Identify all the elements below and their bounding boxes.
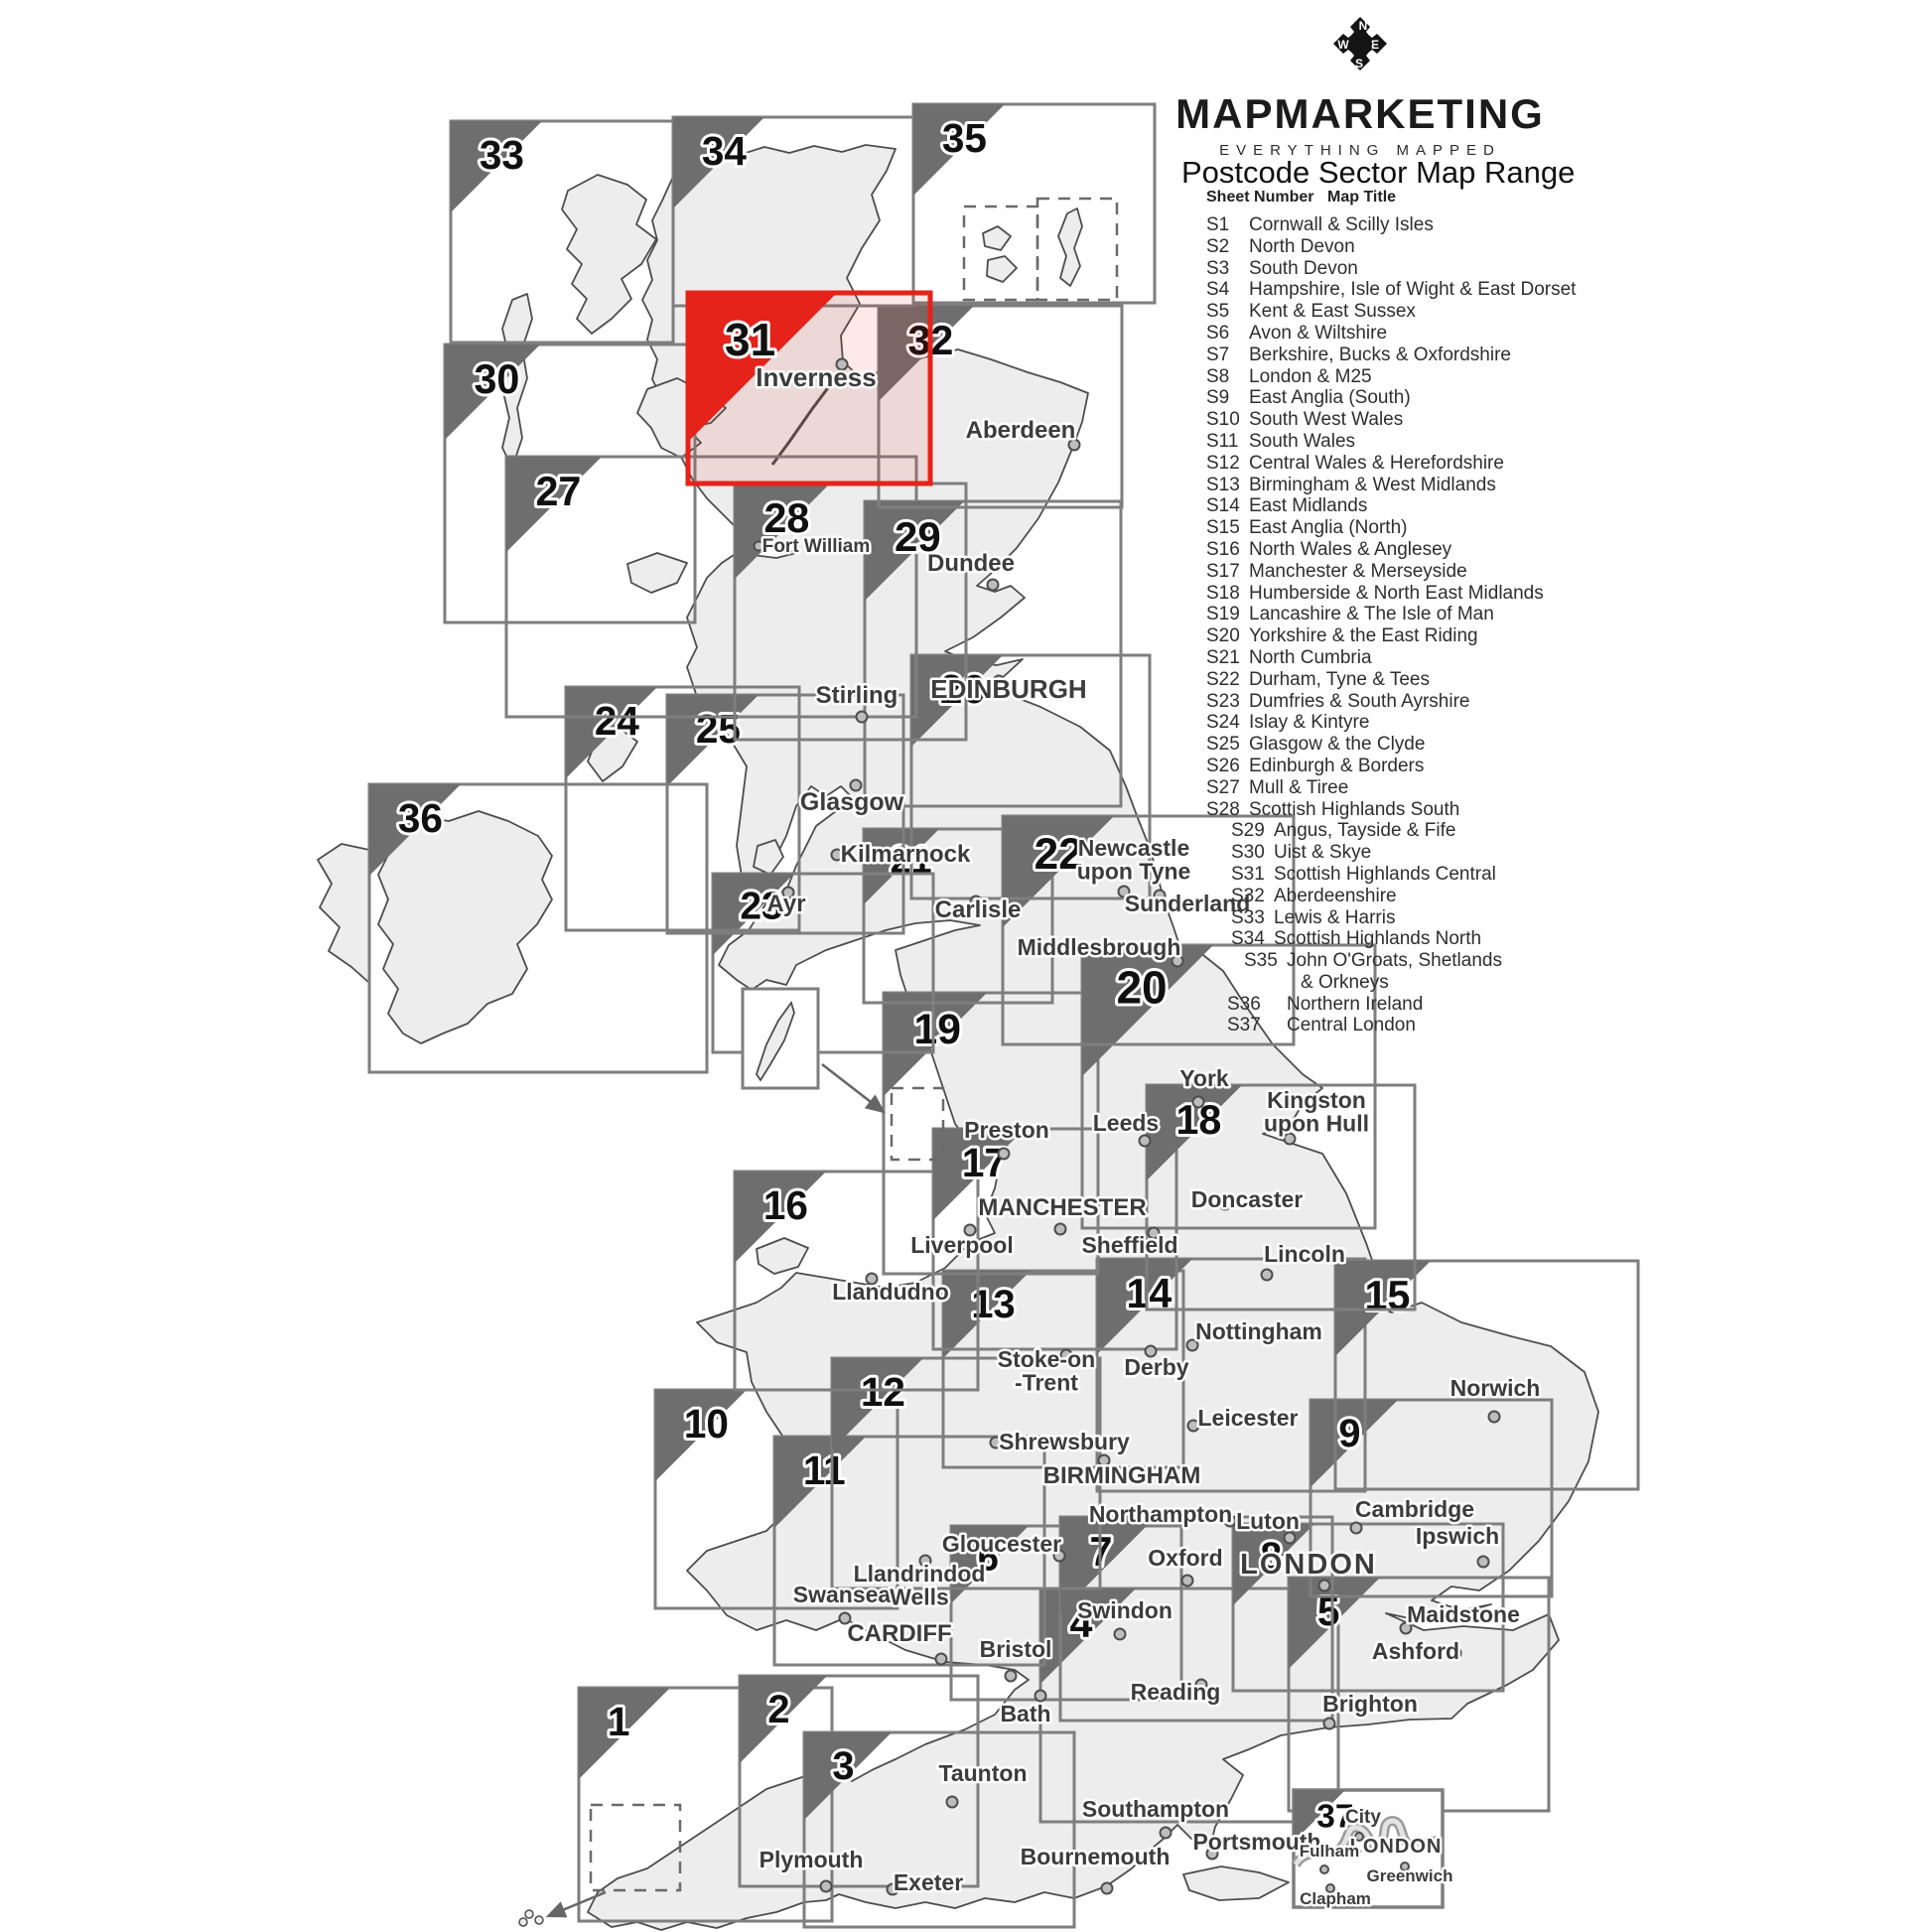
city-dot xyxy=(1320,1865,1328,1873)
legend-row-s19: S19Lancashire & The Isle of Man xyxy=(1187,604,1604,625)
scilly-isles xyxy=(535,1916,543,1924)
legend-row-s1: S1Cornwall & Scilly Isles xyxy=(1187,214,1604,236)
legend-row-s27: S27Mull & Tiree xyxy=(1187,777,1604,799)
city-label: Stirling xyxy=(816,682,898,709)
city-leicester: Leicester xyxy=(1188,1405,1299,1432)
brand-name: MAPMARKETING xyxy=(1142,90,1579,138)
city-label: Taunton xyxy=(939,1760,1028,1786)
city-label: CARDIFF xyxy=(847,1620,951,1647)
sheet-number-27: 27 xyxy=(535,469,581,514)
legend-sheet-number: S12 xyxy=(1206,453,1240,475)
city-llandudno: Llandudno xyxy=(832,1274,949,1306)
legend-row-s9: S9East Anglia (South) xyxy=(1187,387,1604,409)
landmass xyxy=(627,553,687,593)
landmass xyxy=(318,844,369,983)
legend-row-s21: S21North Cumbria xyxy=(1187,647,1604,669)
legend-col-sheet-number: Sheet Number xyxy=(1206,189,1313,207)
city-dot xyxy=(1115,1629,1126,1640)
legend-list: S1Cornwall & Scilly IslesS2North DevonS3… xyxy=(1187,214,1604,1036)
sheet-number-28: 28 xyxy=(763,495,809,541)
city-dot xyxy=(1351,1523,1362,1534)
legend-map-title: South Devon xyxy=(1249,258,1358,280)
city-label: LONDON xyxy=(1240,1549,1377,1581)
legend-map-title: Humberside & North East Midlands xyxy=(1249,583,1544,605)
legend-sheet-number: S32 xyxy=(1231,886,1265,907)
legend-row-s35: S35John O'Groats, Shetlands xyxy=(1187,950,1604,972)
legend-map-title: Central Wales & Herefordshire xyxy=(1249,453,1504,475)
legend-map-title: Angus, Tayside & Fife xyxy=(1274,820,1455,842)
city-label: Greenwich xyxy=(1367,1866,1453,1885)
legend-map-title: Durham, Tyne & Tees xyxy=(1249,669,1430,691)
city-reading: Reading xyxy=(1131,1679,1221,1705)
legend-sheet-number: S1 xyxy=(1206,214,1229,236)
legend-sheet-number: S36 xyxy=(1227,994,1261,1016)
city-london: LONDON xyxy=(1350,1836,1443,1858)
landmass xyxy=(1058,208,1082,286)
legend-map-title: Northern Ireland xyxy=(1287,994,1423,1016)
city-dot xyxy=(947,1797,958,1808)
sheet-number-34: 34 xyxy=(702,128,748,174)
city-label: Clapham xyxy=(1300,1889,1371,1908)
legend-sheet-number: S2 xyxy=(1206,236,1229,258)
legend-sheet-number: S20 xyxy=(1206,625,1240,647)
legend-row-s31: S31Scottish Highlands Central xyxy=(1187,864,1604,886)
sheet-number-17: 17 xyxy=(962,1140,1007,1185)
legend-map-title: Hampshire, Isle of Wight & East Dorset xyxy=(1249,279,1576,301)
legend-map-title: East Anglia (North) xyxy=(1249,517,1407,539)
city-label: EDINBURGH xyxy=(930,674,1086,704)
city-northampton: Northampton xyxy=(1089,1501,1236,1527)
city-edinburgh: EDINBURGH xyxy=(930,674,1086,704)
city-dot xyxy=(1182,1576,1193,1587)
legend-sheet-number: S33 xyxy=(1231,907,1265,929)
city-label: Carlisle xyxy=(935,897,1022,923)
legend-map-title: Manchester & Merseyside xyxy=(1249,561,1467,583)
city-label: York xyxy=(1179,1065,1229,1091)
legend-sheet-number: S19 xyxy=(1206,604,1240,625)
city-kilmarnock: Kilmarnock xyxy=(832,841,972,868)
city-label: Glasgow xyxy=(800,788,904,816)
legend-map-title: Dumfries & South Ayrshire xyxy=(1249,691,1469,713)
legend-sheet-number: S29 xyxy=(1231,820,1265,842)
legend-sheet-number: S3 xyxy=(1206,258,1229,280)
city-kingston-upon-hull: Kingstonupon Hull xyxy=(1264,1087,1369,1145)
city-carlisle: Carlisle xyxy=(935,897,1022,924)
scilly-isles xyxy=(525,1910,533,1918)
sheet-number-33: 33 xyxy=(480,132,524,178)
legend-row-s30: S30Uist & Skye xyxy=(1187,842,1604,864)
legend-row-s36: S36Northern Ireland xyxy=(1187,994,1604,1016)
city-dot xyxy=(1319,1581,1330,1591)
sheet-number-35: 35 xyxy=(942,115,987,161)
city-dot xyxy=(1285,1533,1296,1544)
legend-row-s18: S18Humberside & North East Midlands xyxy=(1187,583,1604,605)
legend-map-title: Mull & Tiree xyxy=(1249,777,1348,799)
landmass xyxy=(562,175,656,334)
legend-row-s34: S34Scottish Highlands North xyxy=(1187,928,1604,950)
compass-letter-n: N xyxy=(1359,19,1368,33)
sheet-number-12: 12 xyxy=(861,1369,905,1415)
legend-sheet-number: S14 xyxy=(1206,495,1240,517)
legend-row-s17: S17Manchester & Merseyside xyxy=(1187,561,1604,583)
city-label: Leeds xyxy=(1093,1110,1159,1136)
city-label: Bath xyxy=(1000,1701,1050,1726)
legend-row-s11: S11South Wales xyxy=(1187,431,1604,453)
city-label: Nottingham xyxy=(1195,1318,1322,1344)
city-label: Lincoln xyxy=(1264,1241,1345,1267)
sheet-number-16: 16 xyxy=(763,1182,808,1228)
sheet-number-11: 11 xyxy=(803,1448,846,1493)
legend-sheet-number: S35 xyxy=(1244,950,1278,972)
legend: Sheet Number Map Title S1Cornwall & Scil… xyxy=(1187,189,1604,1036)
city-gloucester: Gloucester xyxy=(942,1531,1065,1562)
sheet-number-9: 9 xyxy=(1338,1412,1360,1455)
city-dot xyxy=(1262,1270,1273,1281)
city-label: Northampton xyxy=(1089,1501,1232,1527)
page-title: Postcode Sector Map Range xyxy=(1181,155,1575,191)
inset-pointer-arrow xyxy=(822,1064,884,1112)
sheet-number-22: 22 xyxy=(1035,830,1083,879)
city-dot xyxy=(1193,1097,1204,1108)
city-label: Leicester xyxy=(1197,1405,1298,1431)
legend-sheet-number: S13 xyxy=(1206,475,1240,496)
city-label: Kingstonupon Hull xyxy=(1264,1087,1369,1136)
city-label: Middlesbrough xyxy=(1018,934,1181,960)
legend-row-s20: S20Yorkshire & the East Riding xyxy=(1187,625,1604,647)
city-dot xyxy=(1006,1671,1017,1682)
brand-block: NESW MAPMARKETING EVERYTHING MAPPED xyxy=(1142,8,1579,159)
legend-map-title: Birmingham & West Midlands xyxy=(1249,475,1496,496)
legend-sheet-number: S16 xyxy=(1206,539,1240,561)
legend-row-s24: S24Islay & Kintyre xyxy=(1187,712,1604,734)
legend-map-title: Central London xyxy=(1287,1015,1416,1036)
legend-sheet-number: S6 xyxy=(1206,323,1229,345)
city-exeter: Exeter xyxy=(888,1869,964,1895)
compass-letter-e: E xyxy=(1371,38,1379,52)
legend-sheet-number: S21 xyxy=(1206,647,1240,669)
legend-sheet-number: S11 xyxy=(1206,431,1238,453)
legend-row-s7: S7Berkshire, Bucks & Oxfordshire xyxy=(1187,345,1604,366)
city-label: Southampton xyxy=(1082,1796,1229,1822)
legend-row-s6: S6Avon & Wiltshire xyxy=(1187,323,1604,345)
city-dot xyxy=(1324,1719,1335,1729)
legend-row-s32: S32Aberdeenshire xyxy=(1187,886,1604,907)
city-dot xyxy=(1055,1224,1066,1235)
compass-letter-s: S xyxy=(1355,57,1363,70)
legend-map-title: East Anglia (South) xyxy=(1249,387,1411,409)
landmass xyxy=(983,226,1011,250)
city-dot xyxy=(936,1654,947,1665)
legend-map-title: London & M25 xyxy=(1249,366,1372,388)
city-dot xyxy=(988,580,999,591)
legend-sheet-number: S17 xyxy=(1206,561,1240,583)
sheet-number-10: 10 xyxy=(684,1401,729,1447)
sheet-number-30: 30 xyxy=(474,356,519,402)
legend-map-title: Avon & Wiltshire xyxy=(1249,323,1387,345)
city-label: Ayr xyxy=(766,891,805,917)
legend-row-s33: S33Lewis & Harris xyxy=(1187,907,1604,929)
city-label: Ashford xyxy=(1372,1638,1459,1664)
legend-map-title: Lewis & Harris xyxy=(1274,907,1395,929)
legend-map-title: Yorkshire & the East Riding xyxy=(1249,625,1478,647)
legend-row-s4: S4Hampshire, Isle of Wight & East Dorset xyxy=(1187,279,1604,301)
legend-sheet-number: S28 xyxy=(1206,799,1240,821)
city-label: Gloucester xyxy=(942,1531,1061,1557)
city-label: Liverpool xyxy=(910,1232,1014,1258)
city-label: Fulham xyxy=(1300,1842,1359,1861)
city-label: Ipswich xyxy=(1416,1523,1499,1549)
landmass xyxy=(757,1238,808,1274)
legend-map-title: Edinburgh & Borders xyxy=(1249,756,1424,777)
city-label: Llandudno xyxy=(832,1279,949,1305)
city-label: MANCHESTER xyxy=(978,1194,1146,1221)
legend-row-s16: S16North Wales & Anglesey xyxy=(1187,539,1604,561)
city-label: Norwich xyxy=(1450,1375,1541,1401)
legend-row-s26: S26Edinburgh & Borders xyxy=(1187,756,1604,777)
legend-map-title: Kent & East Sussex xyxy=(1249,301,1416,323)
compass-center xyxy=(1347,31,1372,56)
city-label: Aberdeen xyxy=(966,417,1076,444)
legend-sheet-number: S7 xyxy=(1206,345,1229,366)
legend-row-s37: S37Central London xyxy=(1187,1015,1604,1036)
landmass xyxy=(1183,1866,1289,1900)
city-cardiff: CARDIFF xyxy=(847,1620,951,1665)
legend-sheet-number: S30 xyxy=(1231,842,1265,864)
city-shrewsbury: Shrewsbury xyxy=(991,1429,1131,1454)
legend-map-title: Scottish Highlands Central xyxy=(1274,864,1496,886)
city-label: Derby xyxy=(1124,1354,1188,1380)
landmass xyxy=(378,811,552,1043)
city-doncaster: Doncaster xyxy=(1191,1186,1304,1212)
sheet-number-1: 1 xyxy=(608,1699,630,1744)
city-ayr: Ayr xyxy=(766,888,805,918)
legend-map-title: Islay & Kintyre xyxy=(1249,712,1369,734)
city-label: Maidstone xyxy=(1407,1601,1520,1627)
city-label: Kilmarnock xyxy=(841,841,971,868)
landmass xyxy=(987,256,1017,282)
legend-row-s29: S29Angus, Tayside & Fife xyxy=(1187,820,1604,842)
legend-row-s22: S22Durham, Tyne & Tees xyxy=(1187,669,1604,691)
legend-row-s12: S12Central Wales & Herefordshire xyxy=(1187,453,1604,475)
city-label: Fort William xyxy=(762,536,871,557)
city-dot xyxy=(1489,1412,1500,1423)
legend-map-title: Lancashire & The Isle of Man xyxy=(1249,604,1494,625)
legend-row-s2: S2North Devon xyxy=(1187,236,1604,258)
city-label: BIRMINGHAM xyxy=(1043,1462,1201,1489)
sheet-35: 35 xyxy=(913,104,1155,303)
city-greenwich: Greenwich xyxy=(1367,1863,1453,1885)
scilly-isles xyxy=(519,1918,527,1926)
legend-map-title: Scottish Highlands South xyxy=(1249,799,1459,821)
legend-sheet-number: S23 xyxy=(1206,691,1240,713)
legend-map-title: North Wales & Anglesey xyxy=(1249,539,1451,561)
orkney-extent-box xyxy=(964,207,1037,300)
city-label: Bournemouth xyxy=(1021,1844,1171,1869)
legend-row-s35-wrap: & Orkneys xyxy=(1187,972,1604,994)
legend-sheet-number: S10 xyxy=(1206,409,1240,431)
legend-map-title-wrap: & Orkneys xyxy=(1301,972,1389,994)
city-fort-william: Fort William xyxy=(755,536,871,557)
sheet-number-31: 31 xyxy=(725,314,775,365)
legend-row-s14: S14East Midlands xyxy=(1187,495,1604,517)
legend-map-title: Scottish Highlands North xyxy=(1274,928,1481,950)
sheet-number-36: 36 xyxy=(398,795,443,841)
legend-row-s8: S8London & M25 xyxy=(1187,366,1604,388)
legend-map-title: North Cumbria xyxy=(1249,647,1372,669)
city-dot xyxy=(821,1881,832,1892)
legend-row-s3: S3South Devon xyxy=(1187,258,1604,280)
city-label: Oxford xyxy=(1148,1545,1222,1571)
city-label: Doncaster xyxy=(1191,1186,1304,1212)
legend-row-s5: S5Kent & East Sussex xyxy=(1187,301,1604,323)
city-label: Reading xyxy=(1131,1679,1221,1705)
city-label: Cambridge xyxy=(1355,1496,1474,1522)
city-label: Exeter xyxy=(894,1869,963,1895)
sheet-number-19: 19 xyxy=(914,1006,962,1053)
city-sheffield: Sheffield xyxy=(1081,1228,1177,1259)
sheet-number-15: 15 xyxy=(1364,1273,1410,1318)
uk-postcode-sheet-map: 1234567891011121314151617181920212223242… xyxy=(0,0,1932,1932)
legend-sheet-number: S18 xyxy=(1206,583,1240,605)
legend-row-s28: S28Scottish Highlands South xyxy=(1187,799,1604,821)
city-label: City xyxy=(1345,1807,1381,1828)
legend-map-title: South West Wales xyxy=(1249,409,1403,431)
city-label: Inverness xyxy=(756,362,876,392)
legend-map-title: Cornwall & Scilly Isles xyxy=(1249,214,1434,236)
legend-row-s13: S13Birmingham & West Midlands xyxy=(1187,475,1604,496)
city-inverness: Inverness xyxy=(756,359,876,393)
city-label: Shrewsbury xyxy=(999,1429,1130,1454)
city-label: Plymouth xyxy=(759,1847,864,1872)
city-label: Luton xyxy=(1236,1508,1300,1534)
city-dot xyxy=(999,1149,1010,1160)
legend-map-title: South Wales xyxy=(1249,431,1355,453)
legend-sheet-number: S24 xyxy=(1206,712,1240,734)
sheet-number-3: 3 xyxy=(832,1744,854,1788)
legend-map-title: Glasgow & the Clyde xyxy=(1249,734,1425,756)
sheet-number-20: 20 xyxy=(1116,961,1167,1013)
city-label: Brighton xyxy=(1322,1691,1418,1717)
city-dot xyxy=(1102,1883,1113,1894)
city-label: Bristol xyxy=(980,1636,1052,1662)
legend-sheet-number: S34 xyxy=(1231,928,1265,950)
legend-sheet-number: S9 xyxy=(1206,387,1229,409)
city-label: Swindon xyxy=(1077,1597,1173,1623)
legend-sheet-number: S15 xyxy=(1206,517,1240,539)
city-label: Newcastleupon Tyne xyxy=(1077,835,1191,884)
city-dot xyxy=(1140,1136,1151,1147)
legend-map-title: North Devon xyxy=(1249,236,1355,258)
legend-row-s23: S23Dumfries & South Ayrshire xyxy=(1187,691,1604,713)
legend-row-s15: S15East Anglia (North) xyxy=(1187,517,1604,539)
legend-header: Sheet Number Map Title xyxy=(1187,189,1604,214)
city-label: Preston xyxy=(964,1117,1049,1143)
city-dot xyxy=(1035,1691,1046,1702)
city-dot xyxy=(1478,1557,1489,1568)
compass-letter-w: W xyxy=(1337,38,1349,52)
legend-sheet-number: S8 xyxy=(1206,366,1229,388)
legend-map-title: Aberdeenshire xyxy=(1274,886,1397,907)
legend-sheet-number: S31 xyxy=(1231,864,1265,886)
legend-col-map-title: Map Title xyxy=(1327,189,1396,207)
legend-map-title: Uist & Skye xyxy=(1274,842,1371,864)
legend-sheet-number: S22 xyxy=(1206,669,1240,691)
city-dot xyxy=(857,712,868,723)
legend-row-s25: S25Glasgow & the Clyde xyxy=(1187,734,1604,756)
legend-sheet-number: S37 xyxy=(1227,1015,1261,1036)
legend-map-title: Berkshire, Bucks & Oxfordshire xyxy=(1249,345,1511,366)
legend-map-title: East Midlands xyxy=(1249,495,1367,517)
legend-map-title: John O'Groats, Shetlands xyxy=(1287,950,1502,972)
city-label: Sheffield xyxy=(1081,1232,1177,1258)
compass-logo-icon: NESW xyxy=(1301,8,1420,77)
sheet-number-24: 24 xyxy=(595,698,640,744)
legend-sheet-number: S5 xyxy=(1206,301,1229,323)
legend-sheet-number: S26 xyxy=(1206,756,1240,777)
legend-sheet-number: S4 xyxy=(1206,279,1229,301)
legend-sheet-number: S27 xyxy=(1206,777,1240,799)
legend-sheet-number: S25 xyxy=(1206,734,1240,756)
city-ashford: Ashford xyxy=(1372,1638,1461,1664)
city-dot xyxy=(1161,1828,1172,1839)
sheet-number-2: 2 xyxy=(767,1688,789,1731)
city-label: Dundee xyxy=(927,550,1015,577)
legend-row-s10: S10South West Wales xyxy=(1187,409,1604,431)
city-label: LONDON xyxy=(1350,1836,1443,1858)
